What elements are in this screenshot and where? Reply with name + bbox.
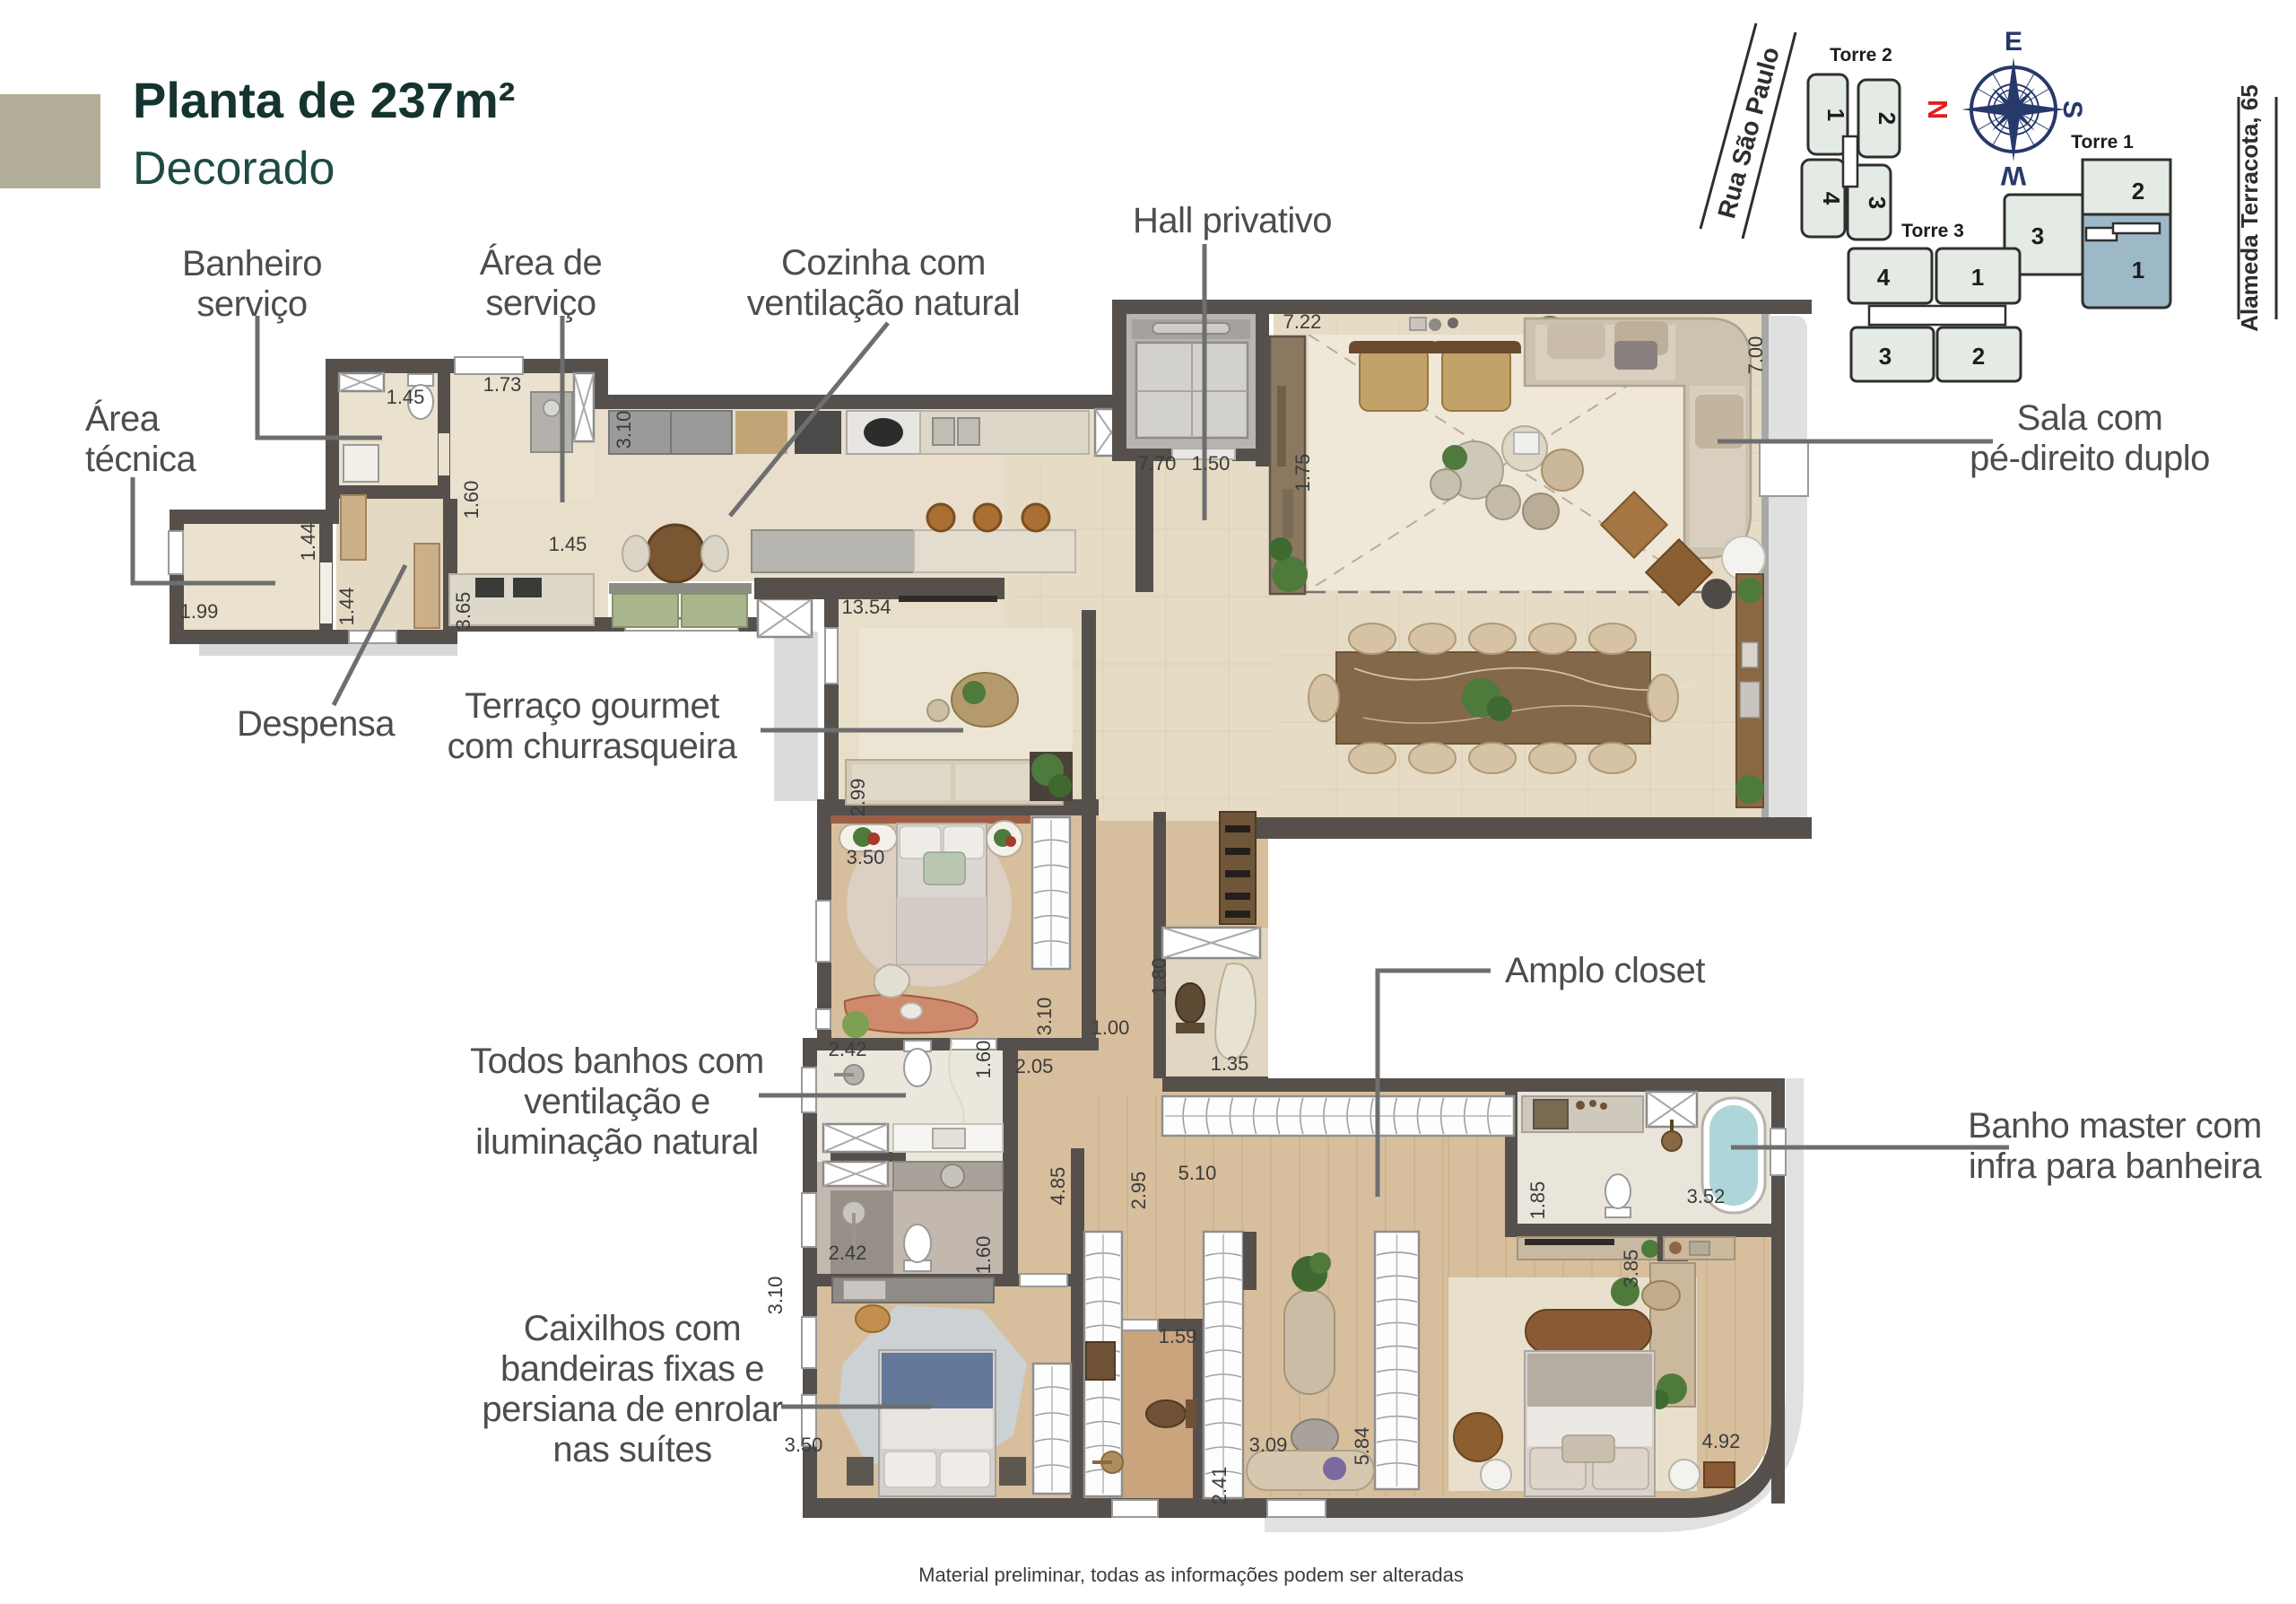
svg-text:7.00: 7.00 — [1744, 336, 1767, 375]
svg-text:2.41: 2.41 — [1208, 1467, 1231, 1505]
svg-text:4: 4 — [1877, 264, 1891, 291]
svg-text:ventilação natural: ventilação natural — [747, 283, 1021, 323]
svg-text:Todos banhos com: Todos banhos com — [470, 1042, 764, 1081]
svg-text:3.09: 3.09 — [1249, 1434, 1288, 1456]
svg-text:1.60: 1.60 — [972, 1236, 995, 1275]
svg-text:5.84: 5.84 — [1351, 1427, 1373, 1466]
svg-text:3.52: 3.52 — [1687, 1185, 1726, 1207]
svg-text:bandeiras fixas e: bandeiras fixas e — [500, 1349, 764, 1389]
svg-text:Torre 2: Torre 2 — [1830, 45, 1892, 65]
svg-text:com churrasqueira: com churrasqueira — [448, 727, 738, 766]
svg-text:1.99: 1.99 — [180, 600, 219, 623]
svg-text:1.45: 1.45 — [549, 533, 587, 555]
svg-text:W: W — [2000, 161, 2026, 190]
svg-text:Planta de 237m²: Planta de 237m² — [133, 72, 515, 128]
svg-text:nas suítes: nas suítes — [552, 1430, 711, 1469]
svg-text:2.42: 2.42 — [829, 1242, 867, 1264]
svg-text:1.45: 1.45 — [387, 386, 425, 408]
svg-text:1.85: 1.85 — [1526, 1181, 1549, 1220]
svg-text:1.35: 1.35 — [1211, 1052, 1249, 1075]
svg-text:2.99: 2.99 — [847, 779, 869, 817]
svg-text:1.44: 1.44 — [297, 523, 319, 562]
svg-text:Banheiro: Banheiro — [182, 244, 322, 283]
svg-text:Torre 1: Torre 1 — [2071, 132, 2134, 153]
svg-text:5.10: 5.10 — [1178, 1162, 1217, 1184]
svg-text:3: 3 — [2031, 222, 2044, 249]
svg-text:Hall privativo: Hall privativo — [1133, 201, 1332, 240]
svg-text:1.80: 1.80 — [1148, 958, 1170, 997]
svg-text:1.59: 1.59 — [1159, 1325, 1197, 1347]
svg-text:1.50: 1.50 — [1192, 452, 1231, 475]
svg-text:2.95: 2.95 — [1127, 1172, 1150, 1210]
svg-text:N: N — [1922, 100, 1953, 119]
svg-text:Decorado: Decorado — [133, 143, 335, 195]
svg-text:3.65: 3.65 — [452, 592, 474, 631]
svg-text:Sala com: Sala com — [2017, 398, 2163, 438]
svg-text:4: 4 — [1818, 192, 1845, 205]
svg-text:4.85: 4.85 — [1047, 1167, 1069, 1206]
svg-text:Área: Área — [85, 398, 161, 439]
svg-text:Banho master com: Banho master com — [1968, 1106, 2262, 1146]
svg-text:técnica: técnica — [85, 440, 196, 479]
svg-text:3.85: 3.85 — [1620, 1250, 1642, 1288]
svg-text:1: 1 — [1822, 109, 1849, 121]
svg-text:3.10: 3.10 — [764, 1277, 787, 1315]
svg-text:2.42: 2.42 — [829, 1038, 867, 1060]
svg-text:3.50: 3.50 — [847, 846, 885, 868]
svg-text:S: S — [2057, 100, 2087, 118]
svg-text:serviço: serviço — [485, 283, 596, 323]
svg-text:3: 3 — [1864, 196, 1891, 209]
svg-text:Torre 3: Torre 3 — [1901, 221, 1964, 241]
svg-text:7.22: 7.22 — [1283, 310, 1322, 333]
svg-text:2: 2 — [2132, 178, 2144, 205]
svg-text:persiana de enrolar: persiana de enrolar — [482, 1390, 782, 1429]
svg-text:1.75: 1.75 — [1291, 454, 1314, 493]
svg-text:Alameda Terracota, 65: Alameda Terracota, 65 — [2236, 84, 2263, 332]
svg-text:Material preliminar, todas as: Material preliminar, todas as informaçõe… — [918, 1564, 1464, 1586]
svg-text:4.92: 4.92 — [1702, 1430, 1741, 1452]
svg-text:2: 2 — [1972, 343, 1985, 370]
svg-text:7.70: 7.70 — [1138, 452, 1177, 475]
svg-text:3.50: 3.50 — [785, 1434, 823, 1456]
svg-text:pé-direito duplo: pé-direito duplo — [1970, 439, 2210, 478]
svg-text:1.44: 1.44 — [335, 588, 358, 626]
svg-text:1.73: 1.73 — [483, 373, 522, 396]
svg-text:1.60: 1.60 — [460, 481, 483, 519]
svg-text:Área de: Área de — [480, 242, 603, 283]
svg-text:Caixilhos com: Caixilhos com — [524, 1309, 741, 1348]
svg-text:3: 3 — [1879, 343, 1892, 370]
svg-text:Amplo closet: Amplo closet — [1505, 951, 1705, 990]
svg-text:serviço: serviço — [196, 284, 307, 324]
svg-text:E: E — [2005, 27, 2022, 57]
svg-text:infra para banheira: infra para banheira — [1969, 1146, 2263, 1186]
svg-text:ventilação e: ventilação e — [524, 1082, 709, 1121]
svg-text:3.10: 3.10 — [613, 411, 635, 449]
svg-text:1: 1 — [2132, 257, 2144, 283]
svg-text:3.10: 3.10 — [1033, 998, 1056, 1036]
svg-text:Terraço gourmet: Terraço gourmet — [465, 686, 719, 726]
svg-text:2: 2 — [1874, 112, 1900, 125]
svg-text:1: 1 — [1971, 264, 1984, 291]
svg-text:Cozinha com: Cozinha com — [781, 243, 986, 283]
svg-text:13.54: 13.54 — [841, 596, 891, 618]
svg-text:1.00: 1.00 — [1091, 1016, 1130, 1039]
svg-text:2.05: 2.05 — [1015, 1055, 1054, 1077]
svg-text:1.60: 1.60 — [972, 1041, 995, 1079]
svg-text:iluminação natural: iluminação natural — [475, 1122, 759, 1162]
svg-text:Despensa: Despensa — [237, 704, 396, 744]
